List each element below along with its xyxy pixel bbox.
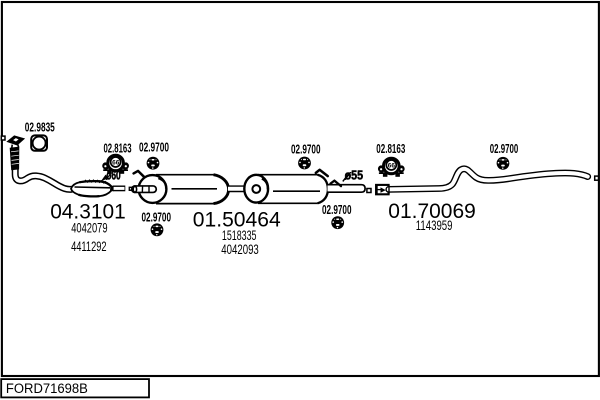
- svg-text:FORD71698B: FORD71698B: [6, 381, 88, 397]
- svg-text:4042079: 4042079: [71, 220, 108, 236]
- svg-text:4042093: 4042093: [221, 241, 259, 257]
- svg-text:02.9700: 02.9700: [322, 202, 352, 217]
- svg-text:02.9700: 02.9700: [291, 141, 321, 156]
- svg-text:02.9700: 02.9700: [142, 209, 172, 224]
- svg-text:02.8163: 02.8163: [376, 141, 405, 156]
- svg-text:02.8163: 02.8163: [104, 140, 132, 155]
- svg-text:02.9700: 02.9700: [490, 141, 519, 156]
- svg-text:02.9700: 02.9700: [139, 140, 169, 155]
- svg-text:02.9835: 02.9835: [25, 119, 55, 134]
- svg-text:66: 66: [112, 159, 120, 166]
- svg-text:4411292: 4411292: [71, 238, 107, 254]
- svg-text:1143959: 1143959: [416, 217, 453, 233]
